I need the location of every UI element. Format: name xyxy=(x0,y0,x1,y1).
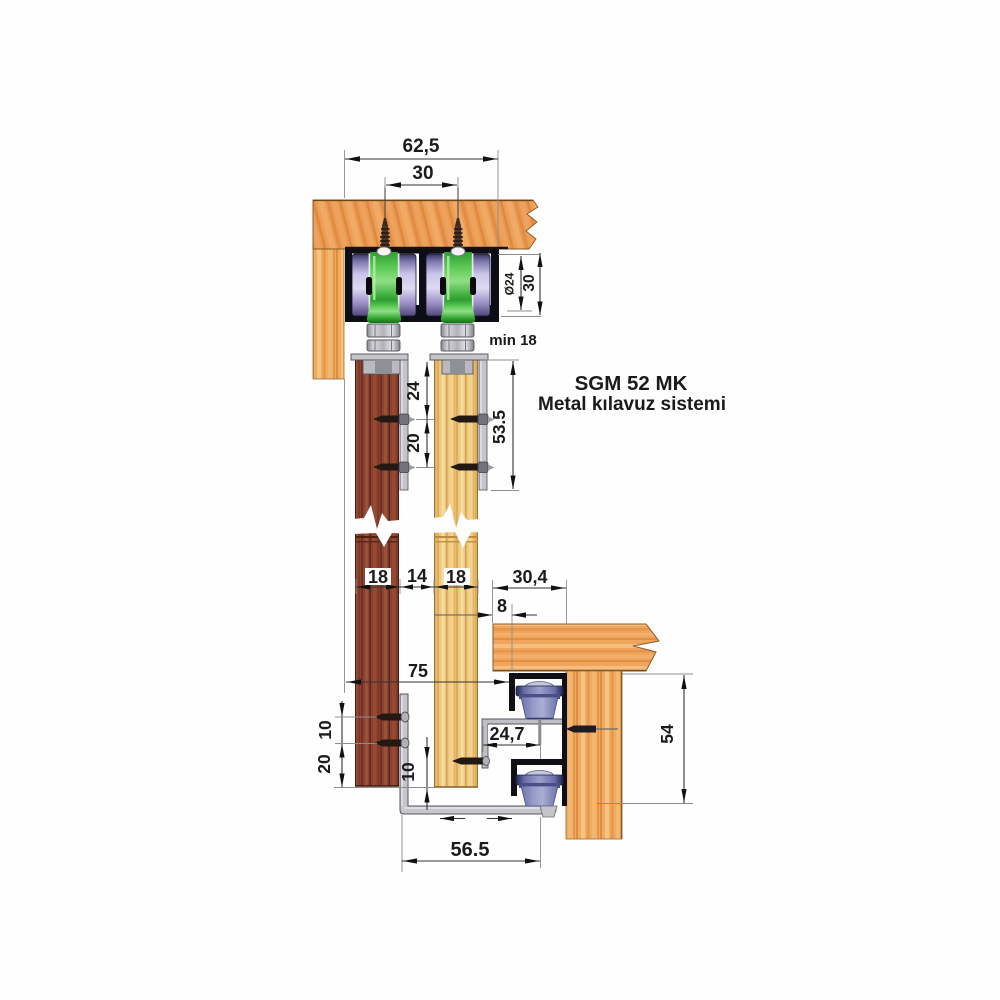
svg-text:24,7: 24,7 xyxy=(489,724,524,744)
svg-text:30,4: 30,4 xyxy=(512,567,547,587)
svg-text:8: 8 xyxy=(497,596,507,616)
svg-text:30: 30 xyxy=(412,163,433,184)
svg-text:min 18: min 18 xyxy=(489,332,537,349)
svg-text:53.5: 53.5 xyxy=(489,410,509,444)
svg-text:SGM 52 MK: SGM 52 MK xyxy=(575,372,688,395)
svg-text:56.5: 56.5 xyxy=(451,839,490,861)
svg-text:20: 20 xyxy=(314,754,334,774)
svg-text:Metal kılavuz sistemi: Metal kılavuz sistemi xyxy=(538,394,726,415)
svg-text:10: 10 xyxy=(398,762,418,782)
svg-text:62,5: 62,5 xyxy=(403,136,440,157)
svg-text:30: 30 xyxy=(521,274,538,291)
svg-text:Ø24: Ø24 xyxy=(503,272,517,295)
svg-text:24: 24 xyxy=(403,381,423,401)
svg-text:14: 14 xyxy=(407,566,427,586)
svg-text:20: 20 xyxy=(403,433,423,453)
svg-text:18: 18 xyxy=(446,567,466,587)
svg-text:18: 18 xyxy=(368,567,388,587)
svg-text:54: 54 xyxy=(657,724,677,744)
svg-text:75: 75 xyxy=(408,661,428,681)
svg-text:10: 10 xyxy=(315,720,335,740)
